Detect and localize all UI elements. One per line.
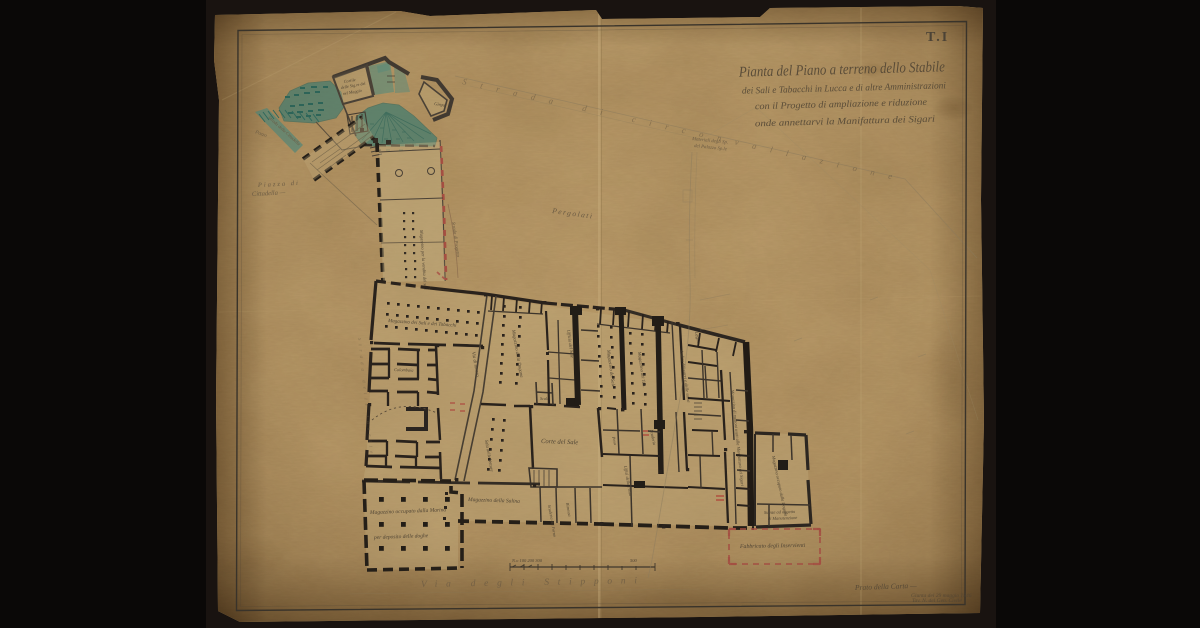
svg-text:Tav. N. del Gen. Civile: Tav. N. del Gen. Civile xyxy=(912,598,962,604)
svg-text:Colombaia: Colombaia xyxy=(394,367,414,373)
svg-text:500: 500 xyxy=(630,558,638,563)
svg-text:Fabbricato degli Inservienti: Fabbricato degli Inservienti xyxy=(739,543,806,550)
svg-text:di Manutenzione: di Manutenzione xyxy=(768,515,798,521)
svg-text:T.I: T.I xyxy=(926,30,949,45)
svg-text:N.o 100 200 300: N.o 100 200 300 xyxy=(511,558,543,563)
svg-text:Corte del Sale: Corte del Sale xyxy=(541,438,579,446)
